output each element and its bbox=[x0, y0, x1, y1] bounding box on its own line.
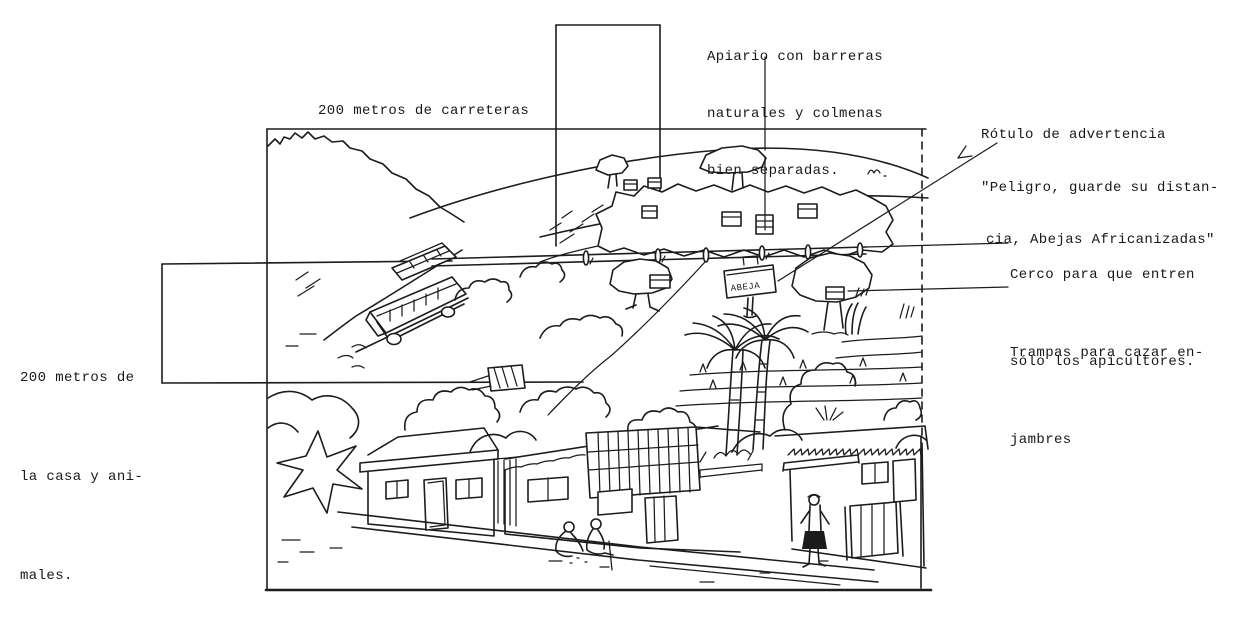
label-house-distance: 200 metros de la casa y ani- males. bbox=[20, 296, 143, 629]
label-line: "Peligro, guarde su distan- bbox=[981, 180, 1219, 198]
label-line: Rótulo de advertencia bbox=[981, 127, 1219, 145]
label-line: la casa y ani- bbox=[20, 461, 143, 494]
palm-trees bbox=[685, 308, 808, 462]
hanging-trap-box bbox=[470, 365, 525, 391]
label-line: 200 metros de bbox=[20, 362, 143, 395]
label-line: Apiario con barreras bbox=[707, 48, 883, 67]
label-apiary: Apiario con barreras naturales y colmena… bbox=[707, 10, 883, 219]
label-line: Trampas para cazar en- bbox=[1010, 339, 1204, 368]
label-line: males. bbox=[20, 560, 143, 593]
house-right bbox=[775, 426, 928, 568]
terraced-field bbox=[676, 303, 922, 420]
label-line: naturales y colmenas bbox=[707, 105, 883, 124]
label-line: 200 metros de carreteras bbox=[318, 102, 529, 121]
arrowhead-warning-sign bbox=[958, 146, 972, 158]
tree-with-trap-left bbox=[610, 259, 672, 311]
house-left bbox=[360, 428, 518, 536]
label-line: bien separadas. bbox=[707, 162, 883, 181]
children-figures bbox=[549, 519, 613, 570]
callout-line-traps bbox=[848, 287, 1008, 291]
midground-foliage bbox=[268, 315, 926, 452]
label-traps: Trampas para cazar en- jambres bbox=[1010, 281, 1204, 513]
illustration-scene: ABEJA bbox=[0, 0, 1242, 629]
label-road-distance: 200 metros de carreteras bbox=[318, 64, 529, 159]
warning-sign-board: ABEJA bbox=[724, 256, 776, 318]
house-middle bbox=[505, 426, 762, 552]
label-line: jambres bbox=[1010, 426, 1204, 455]
agave-plant bbox=[277, 431, 362, 513]
person-figure bbox=[801, 495, 829, 568]
